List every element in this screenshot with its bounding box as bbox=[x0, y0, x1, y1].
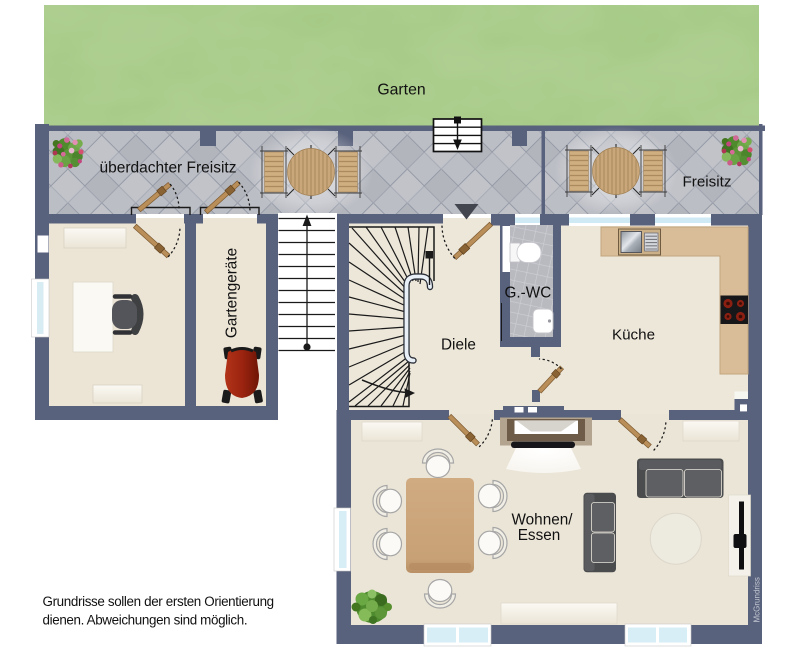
svg-text:Garten: Garten bbox=[377, 82, 425, 99]
svg-text:Diele: Diele bbox=[441, 336, 476, 353]
svg-text:Freisitz: Freisitz bbox=[683, 173, 732, 190]
svg-text:Grundrisse sollen der ersten O: Grundrisse sollen der ersten Orientierun… bbox=[43, 594, 274, 609]
svg-text:McGrundriss: McGrundriss bbox=[753, 577, 762, 622]
svg-text:dienen. Abweichungen sind mögl: dienen. Abweichungen sind möglich. bbox=[43, 613, 248, 628]
svg-text:überdachter Freisitz: überdachter Freisitz bbox=[100, 160, 237, 177]
svg-text:Gartengeräte: Gartengeräte bbox=[224, 248, 241, 338]
svg-text:Essen: Essen bbox=[518, 527, 561, 544]
svg-text:Küche: Küche bbox=[612, 327, 655, 344]
svg-text:G.-WC: G.-WC bbox=[505, 285, 552, 302]
